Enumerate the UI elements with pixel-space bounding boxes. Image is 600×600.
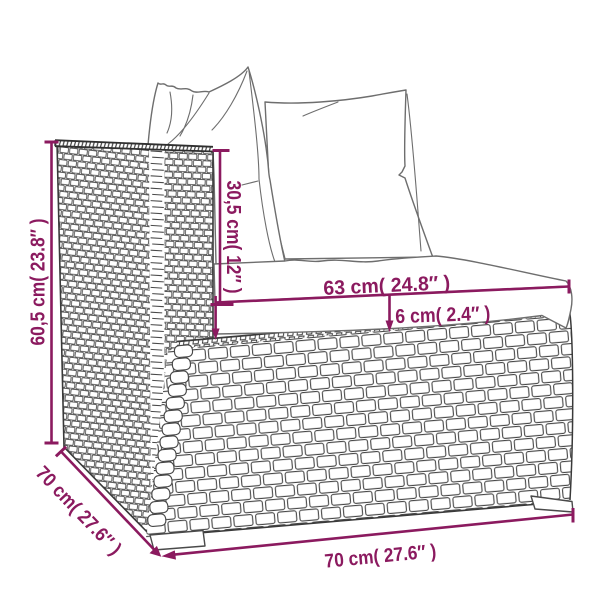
- svg-text:60,5 cm( 23.8″ ): 60,5 cm( 23.8″ ): [28, 219, 50, 346]
- svg-text:6 cm( 2.4″ ): 6 cm( 2.4″ ): [395, 303, 491, 328]
- svg-text:30,5 cm( 12″ ): 30,5 cm( 12″ ): [222, 181, 244, 294]
